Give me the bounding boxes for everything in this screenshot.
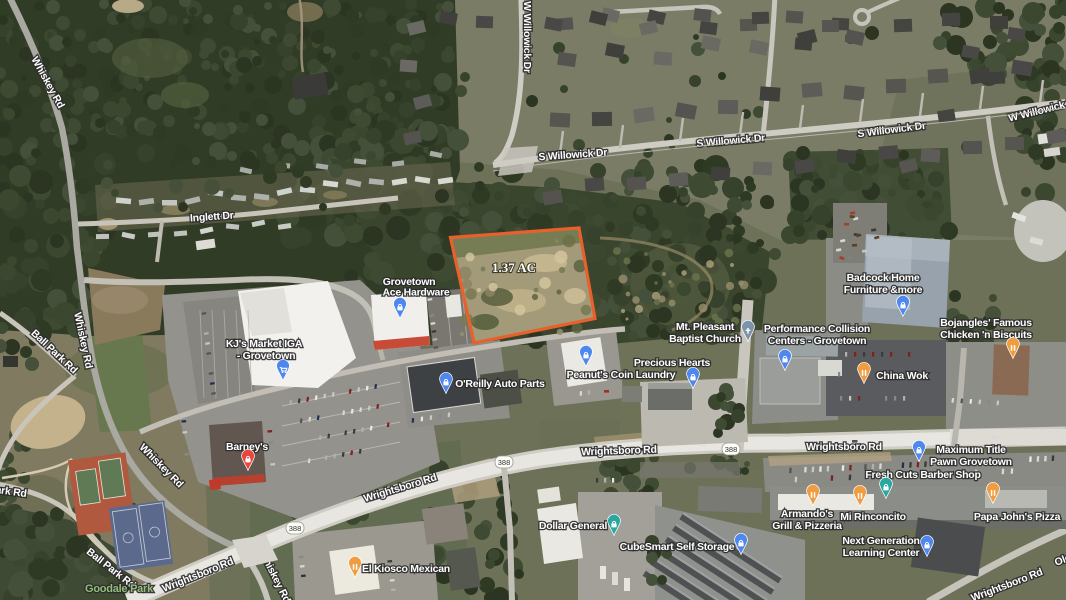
svg-text:Next Generation: Next Generation: [842, 535, 919, 547]
svg-text:KJ's Market IGA: KJ's Market IGA: [226, 338, 303, 350]
svg-text:Wrightsboro Rd: Wrightsboro Rd: [806, 441, 882, 453]
svg-text:Learning Center: Learning Center: [843, 547, 920, 559]
svg-text:Badcock Home: Badcock Home: [847, 272, 920, 284]
svg-text:Furniture &more: Furniture &more: [844, 284, 923, 296]
svg-text:O'Reilly Auto Parts: O'Reilly Auto Parts: [455, 378, 545, 390]
svg-text:China Wok: China Wok: [876, 370, 928, 382]
svg-text:Papa John's Pizza: Papa John's Pizza: [974, 511, 1061, 523]
svg-text:Dollar General: Dollar General: [539, 520, 608, 532]
svg-text:Mi Rinconcito: Mi Rinconcito: [840, 511, 906, 523]
svg-text:Pawn Grovetown: Pawn Grovetown: [930, 456, 1012, 468]
svg-text:388: 388: [498, 458, 511, 467]
svg-text:388: 388: [725, 445, 738, 454]
svg-text:Bojangles' Famous: Bojangles' Famous: [940, 317, 1032, 329]
svg-text:Chicken 'n Biscuits: Chicken 'n Biscuits: [940, 329, 1032, 341]
svg-text:Ace Hardware: Ace Hardware: [382, 287, 449, 299]
svg-text:Grill & Pizzeria: Grill & Pizzeria: [772, 520, 842, 532]
svg-text:Mt. Pleasant: Mt. Pleasant: [676, 321, 735, 333]
svg-text:Goodale Park: Goodale Park: [85, 583, 154, 595]
svg-text:Armando's: Armando's: [781, 508, 834, 520]
svg-text:Precious Hearts: Precious Hearts: [634, 357, 711, 369]
svg-text:Centers - Grovetown: Centers - Grovetown: [768, 335, 867, 347]
svg-text:El Kiosco Mexican: El Kiosco Mexican: [362, 563, 450, 575]
svg-text:1.37 AC: 1.37 AC: [492, 260, 536, 275]
svg-text:Baptist Church: Baptist Church: [669, 333, 741, 345]
svg-text:Performance Collision: Performance Collision: [764, 323, 870, 335]
svg-text:388: 388: [289, 524, 302, 533]
svg-text:CubeSmart Self Storage: CubeSmart Self Storage: [620, 541, 735, 553]
svg-text:Maximum Title: Maximum Title: [936, 444, 1006, 456]
svg-text:W Willowick Dr: W Willowick Dr: [521, 1, 533, 73]
svg-text:Peanut's Coin Laundry: Peanut's Coin Laundry: [567, 369, 676, 381]
